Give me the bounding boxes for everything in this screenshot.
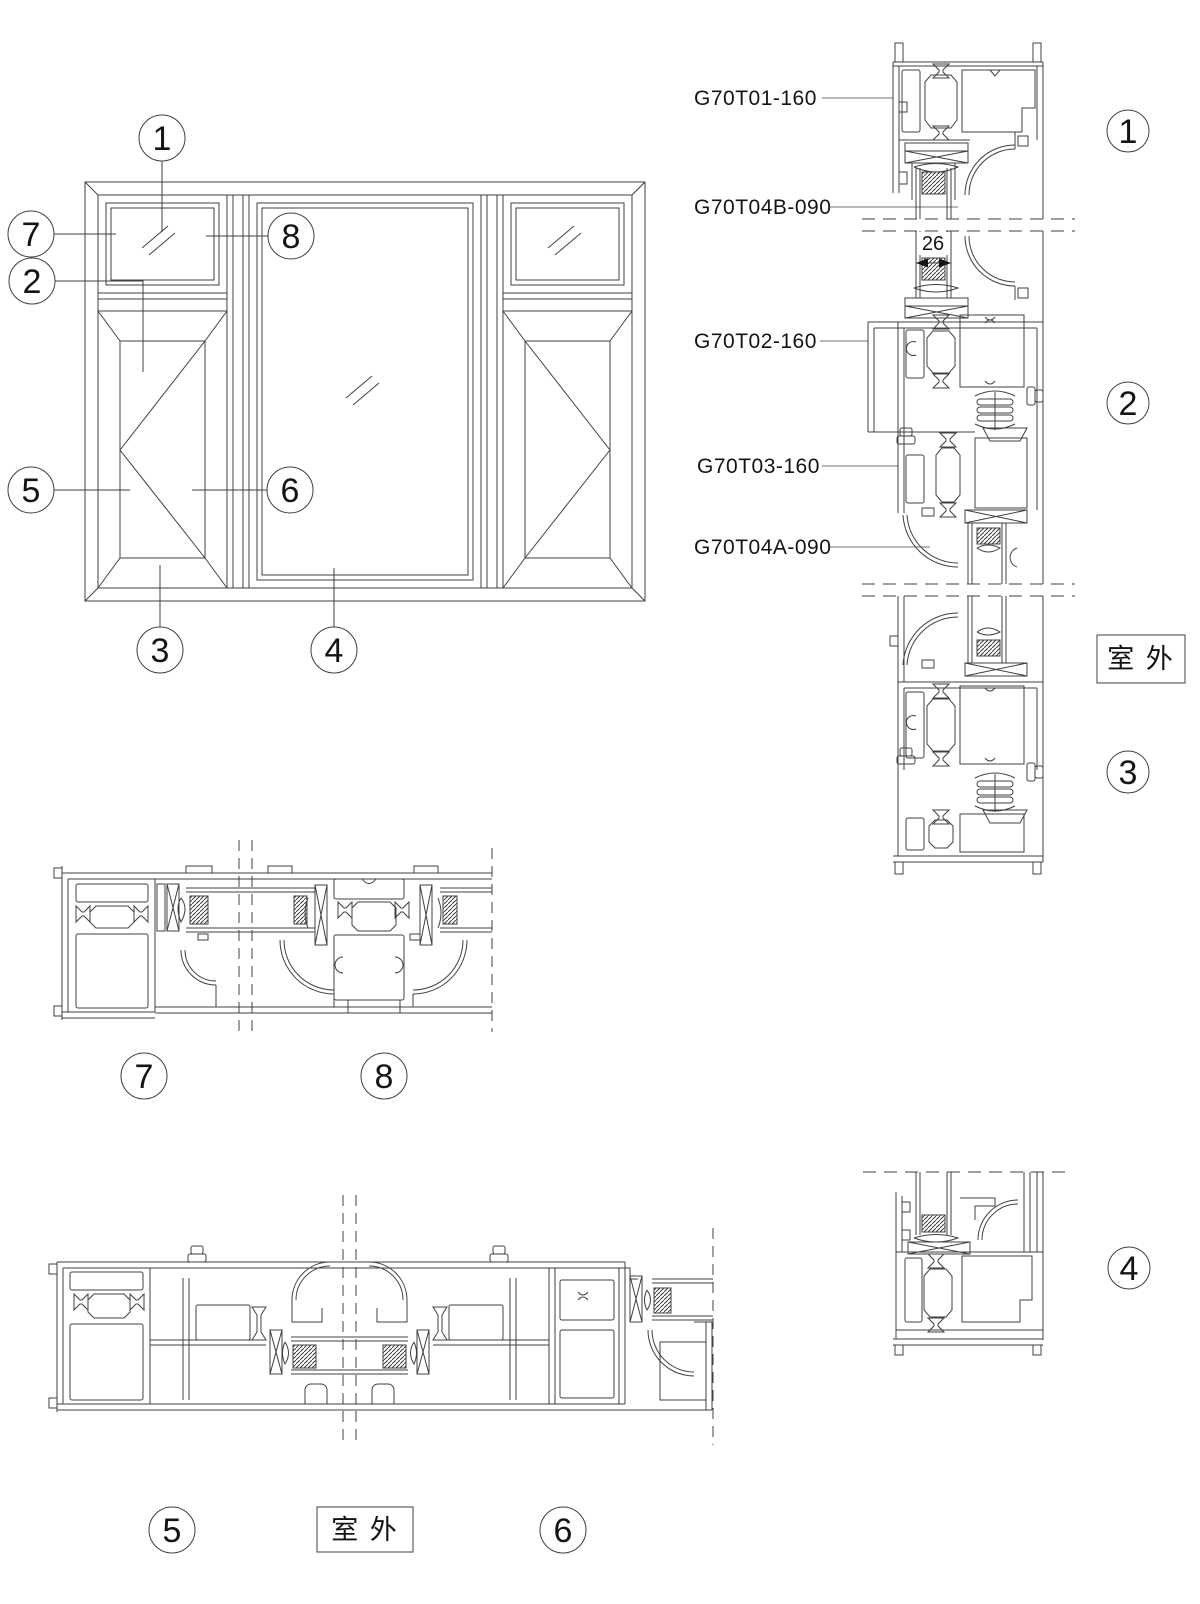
section-mark-2-label: 2 (1119, 385, 1138, 423)
callout-6-label: 6 (281, 472, 300, 510)
vsection-sill-detail (890, 596, 1043, 874)
window-elevation: 1 7 8 2 5 6 3 4 (8, 115, 645, 673)
part-label-g70t01: G70T01-160 (694, 87, 817, 110)
outdoor-label-bottom: 室 外 (331, 1515, 399, 1545)
section-mark-8-label: 8 (375, 1058, 394, 1096)
horizontal-section-mid: 7 8 (54, 840, 492, 1099)
callout-2: 2 (9, 258, 55, 304)
section-mark-1-label: 1 (1119, 113, 1138, 151)
section-mark-2: 2 (1107, 382, 1149, 424)
section-mark-6: 6 (540, 1507, 586, 1553)
outdoor-box-right: 室 外 (1097, 635, 1185, 683)
section-mark-4: 4 (1108, 1247, 1150, 1289)
casement-sash-left (98, 311, 227, 588)
vertical-section: 26 (694, 43, 1185, 874)
vsection-detail-4: 4 (863, 1172, 1150, 1355)
frame-inner (98, 195, 632, 588)
callout-4-label: 4 (325, 632, 344, 670)
callout-2-label: 2 (23, 263, 42, 301)
bsection-fixed-transition (625, 1268, 713, 1410)
bsection-left-jamb (49, 1262, 150, 1412)
hsection-left-jamb (54, 866, 155, 1020)
bsection-right-mullion (549, 1262, 625, 1404)
frame-outer (85, 182, 645, 601)
callout-4: 4 (311, 627, 357, 673)
callout-3: 3 (137, 627, 183, 673)
section-mark-5-label: 5 (163, 1512, 182, 1550)
part-label-g70t04b: G70T04B-090 (694, 196, 831, 219)
callout-5: 5 (8, 467, 54, 513)
section-mark-6-label: 6 (554, 1512, 573, 1550)
section-mark-3: 3 (1107, 751, 1149, 793)
bsection-sash-left (150, 1262, 330, 1400)
callout-7-label: 7 (22, 216, 41, 254)
casement-sash-right (503, 311, 632, 588)
cad-sheet: 1 7 8 2 5 6 3 4 (0, 0, 1200, 1604)
section-mark-4-label: 4 (1120, 1250, 1139, 1288)
window-profile-drawing: 1 7 8 2 5 6 3 4 (0, 0, 1200, 1604)
callout-3-label: 3 (151, 632, 170, 670)
outdoor-box-bottom: 室 外 (317, 1507, 413, 1552)
callout-1: 1 (139, 115, 185, 161)
bsection-sash-right (369, 1262, 549, 1400)
hsection-sash-band (155, 934, 492, 1013)
mullion-right (481, 195, 503, 588)
section-mark-7-label: 7 (135, 1058, 154, 1096)
callout-5-label: 5 (22, 472, 41, 510)
fixed-lite-top-right (511, 203, 624, 285)
part-label-g70t02: G70T02-160 (694, 330, 817, 353)
transom-left (98, 293, 227, 299)
vsection-transom-detail: 26 (868, 231, 1043, 584)
vsection-head-detail (893, 43, 1043, 219)
callout-6: 6 (267, 467, 313, 513)
section-mark-1: 1 (1107, 110, 1149, 152)
outdoor-label-right: 室 外 (1107, 644, 1175, 674)
section-mark-5: 5 (149, 1507, 195, 1553)
part-label-g70t03: G70T03-160 (697, 455, 820, 478)
glass-dimension-value: 26 (922, 233, 944, 255)
horizontal-section-bottom: 5 室 外 6 (49, 1195, 713, 1553)
callout-8: 8 (268, 213, 314, 259)
callout-7: 7 (8, 211, 54, 257)
part-label-g70t04a: G70T04A-090 (694, 536, 831, 559)
callout-8-label: 8 (282, 218, 301, 256)
transom-right (503, 293, 632, 299)
part-labels: G70T01-160 G70T04B-090 G70T02-160 G70T03… (694, 87, 958, 559)
section-mark-3-label: 3 (1119, 754, 1138, 792)
section-mark-7: 7 (121, 1053, 167, 1099)
section-mark-8: 8 (361, 1053, 407, 1099)
fixed-lite-center (257, 203, 473, 580)
callout-1-label: 1 (153, 120, 172, 158)
mullion-left (227, 195, 249, 588)
